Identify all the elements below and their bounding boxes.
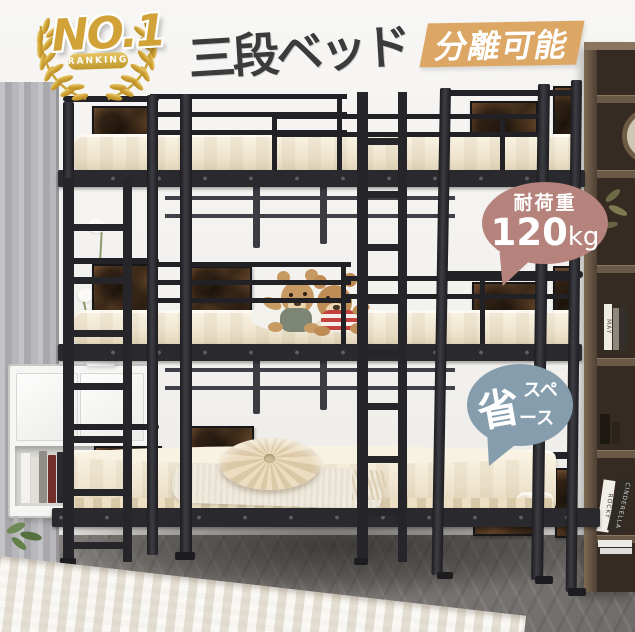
white-stack — [600, 548, 632, 554]
bed-foot — [568, 588, 586, 596]
back-rail-support — [253, 186, 260, 248]
dried-plant — [607, 203, 628, 218]
space-text-1: スペ — [523, 376, 558, 402]
white-stack — [598, 540, 632, 547]
shelf-board — [597, 358, 635, 366]
ranking-pill: RANKING — [68, 52, 129, 70]
load-value: 120 — [491, 211, 568, 254]
rail-support — [272, 114, 277, 172]
frame-bar-middle — [58, 344, 582, 361]
space-big-char: 省 — [472, 373, 524, 440]
book-spine — [48, 455, 56, 503]
bed-post — [63, 102, 74, 182]
frame-bar-top — [58, 170, 585, 187]
wall-clock — [622, 108, 635, 164]
bed-post — [147, 95, 158, 555]
rail-support — [341, 262, 346, 346]
bed-foot — [175, 552, 195, 560]
page-title: 三段ベッド — [186, 7, 410, 89]
book-spine — [39, 451, 47, 503]
shelf-board — [597, 95, 635, 103]
back-guardrail — [165, 368, 455, 390]
frame-bar-bottom — [52, 508, 600, 527]
rail-support — [500, 114, 505, 172]
load-capacity-bubble: 耐荷重 120kg — [482, 182, 608, 264]
shelf-board — [597, 170, 635, 178]
back-rail-support — [253, 358, 260, 414]
back-rail-support — [320, 358, 327, 410]
book-spine — [31, 457, 38, 503]
space-saving-bubble: 省 スペ ース — [467, 364, 573, 446]
cushion-button — [264, 454, 275, 463]
shelf-board — [597, 450, 635, 458]
bookshelf-top — [584, 42, 635, 50]
product-image: MAY ROCKY CINDERELLA — [0, 0, 635, 632]
ladder-left — [63, 178, 132, 562]
rail-support — [337, 94, 342, 172]
dried-plant — [604, 187, 622, 204]
shelf-board — [597, 265, 635, 273]
book-spine — [21, 453, 30, 503]
back-rail-support — [320, 186, 327, 244]
space-text-2: ース — [519, 404, 554, 430]
bear-leg — [314, 326, 330, 336]
floor-cushion — [220, 438, 320, 490]
separable-ribbon: 分離可能 — [419, 21, 584, 68]
end-rail — [442, 90, 582, 96]
bed-foot — [535, 576, 553, 584]
ladder-right — [357, 92, 407, 562]
bed-foot — [354, 558, 368, 565]
bed-foot — [437, 572, 453, 579]
rail-support — [480, 276, 485, 346]
bear-leg — [268, 322, 283, 332]
bed-post — [180, 94, 192, 556]
book-spine — [620, 306, 627, 350]
candle — [612, 422, 620, 444]
book-spine — [613, 308, 619, 350]
load-unit: kg — [568, 222, 600, 252]
candle — [600, 414, 610, 444]
magazine-spine: MAY — [604, 304, 612, 350]
back-guardrail — [165, 196, 455, 218]
